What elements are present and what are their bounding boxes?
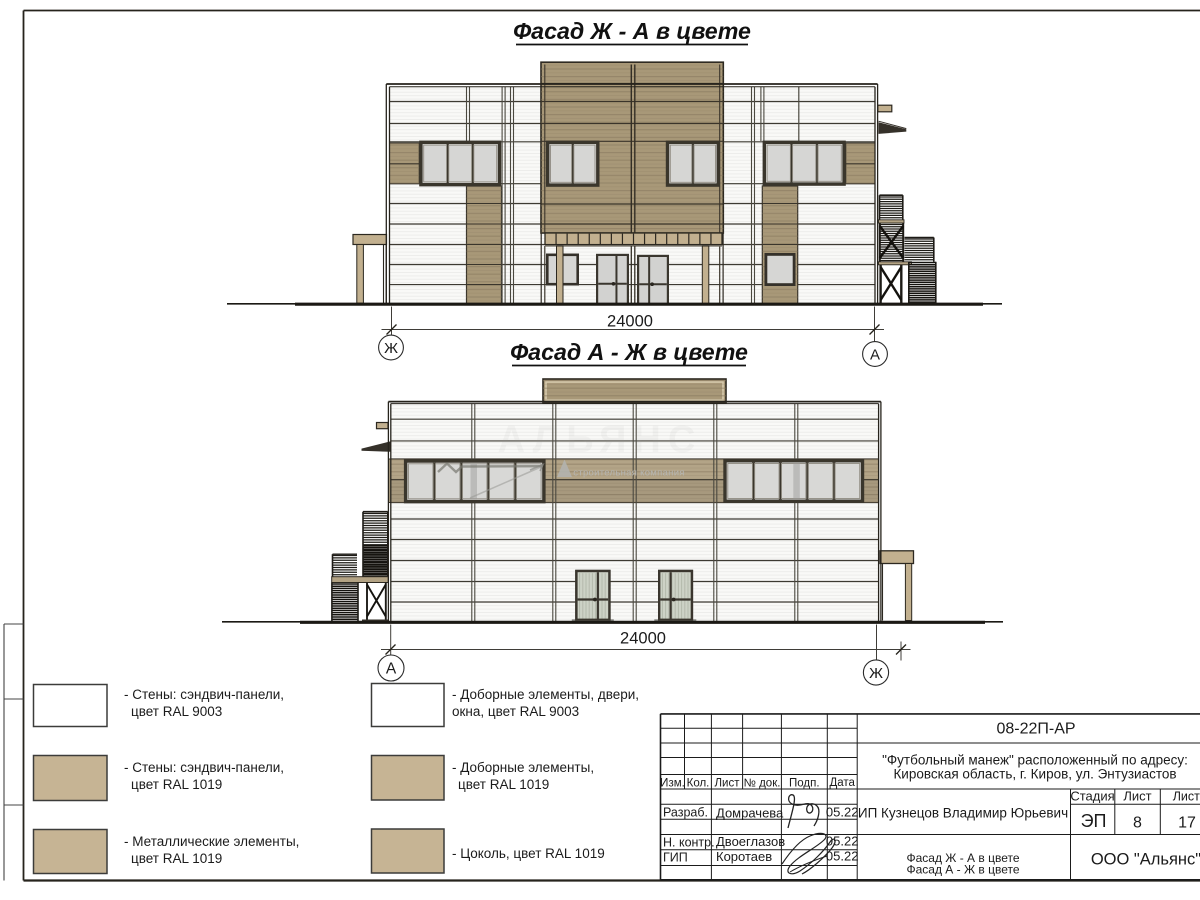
svg-text:цвет RAL 1019: цвет RAL 1019: [131, 851, 222, 866]
svg-text:Коротаев: Коротаев: [716, 849, 772, 864]
svg-text:Фасад А - Ж в цвете: Фасад А - Ж в цвете: [906, 863, 1019, 877]
svg-text:строительная компания: строительная компания: [573, 468, 685, 479]
svg-text:АЛЬЯНС: АЛЬЯНС: [498, 419, 703, 461]
svg-text:Дата: Дата: [829, 777, 855, 789]
svg-text:Стадия: Стадия: [1070, 789, 1114, 804]
svg-text:Листов: Листов: [1173, 790, 1200, 804]
svg-text:- Доборные элементы,: - Доборные элементы,: [452, 760, 594, 775]
svg-text:Ж: Ж: [869, 665, 883, 682]
svg-text:ЭП: ЭП: [1081, 811, 1107, 831]
svg-text:А: А: [386, 661, 397, 678]
svg-text:ООО "Альянс": ООО "Альянс": [1091, 851, 1200, 869]
svg-text:ГИП: ГИП: [663, 851, 688, 865]
svg-text:Фасад Ж - А в цвете: Фасад Ж - А в цвете: [513, 18, 751, 44]
svg-text:- Стены: сэндвич-панели,: - Стены: сэндвич-панели,: [124, 687, 284, 702]
svg-text:цвет RAL 1019: цвет RAL 1019: [458, 777, 549, 792]
svg-text:А: А: [870, 347, 880, 364]
svg-text:05.22: 05.22: [826, 805, 859, 820]
svg-text:Изм.: Изм.: [660, 778, 685, 790]
svg-text:24000: 24000: [620, 630, 666, 648]
svg-text:Домрачева: Домрачева: [716, 806, 784, 821]
svg-text:- Цоколь, цвет RAL 1019: - Цоколь, цвет RAL 1019: [452, 846, 605, 861]
svg-text:№ док.: № док.: [744, 778, 781, 790]
svg-text:Разраб.: Разраб.: [663, 806, 708, 820]
svg-text:24000: 24000: [607, 313, 653, 331]
svg-text:Н. контр.: Н. контр.: [663, 836, 715, 850]
svg-text:Фасад А - Ж в цвете: Фасад А - Ж в цвете: [510, 339, 748, 365]
svg-text:цвет RAL 9003: цвет RAL 9003: [131, 704, 222, 719]
svg-text:08-22П-АР: 08-22П-АР: [996, 721, 1075, 738]
svg-text:Лист: Лист: [1123, 789, 1151, 804]
svg-text:05.22: 05.22: [826, 849, 859, 864]
svg-text:Двоеглазов: Двоеглазов: [716, 834, 785, 849]
svg-text:ИП Кузнецов Владимир Юрьевич: ИП Кузнецов Владимир Юрьевич: [858, 806, 1068, 821]
svg-text:- Стены: сэндвич-панели,: - Стены: сэндвич-панели,: [124, 760, 284, 775]
svg-text:окна, цвет RAL 9003: окна, цвет RAL 9003: [452, 704, 579, 719]
svg-text:"Футбольный манеж" расположенн: "Футбольный манеж" расположенный по адре…: [882, 753, 1188, 768]
svg-text:цвет RAL 1019: цвет RAL 1019: [131, 777, 222, 792]
svg-text:Лист: Лист: [715, 778, 741, 790]
svg-text:17: 17: [1178, 815, 1196, 832]
svg-text:Кол.: Кол.: [687, 778, 710, 790]
svg-text:Ж: Ж: [384, 340, 398, 357]
svg-text:- Металлические элементы,: - Металлические элементы,: [124, 834, 299, 849]
svg-text:- Доборные элементы, двери,: - Доборные элементы, двери,: [452, 687, 639, 702]
svg-text:Кировская область, г. Киров, у: Кировская область, г. Киров, ул. Энтузиа…: [893, 767, 1176, 782]
svg-text:8: 8: [1133, 815, 1142, 832]
svg-text:Подп.: Подп.: [789, 778, 820, 790]
